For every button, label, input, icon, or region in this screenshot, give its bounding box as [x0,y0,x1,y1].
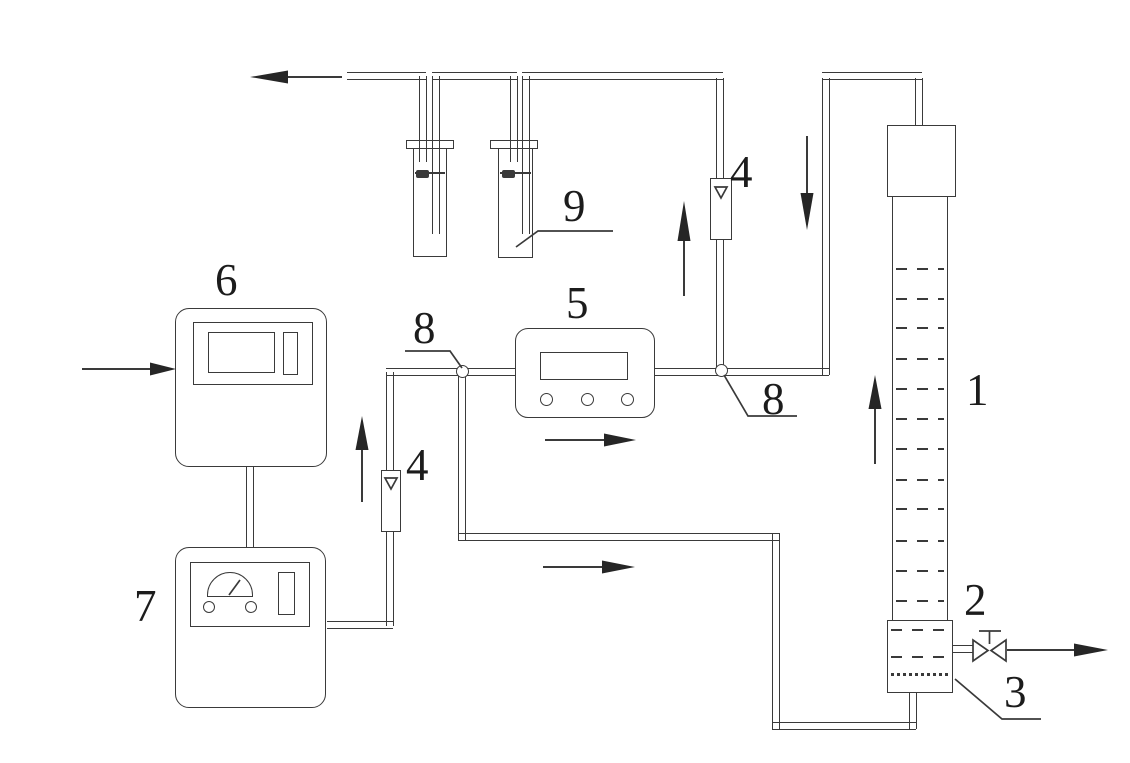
pipe-instrument6-to-instrument7 [246,466,254,547]
label-8-junction-left: 8 [413,306,436,351]
bottle-1-liquid-meniscus [416,170,429,178]
flow-arrow-down-right [801,136,814,230]
label-5-analyzer: 5 [566,281,589,326]
pipe-column-to-valve [953,645,974,653]
flow-arrow-up-column [869,375,882,464]
inlet-arrow [82,363,176,376]
pipe-bottle2-to-flowmeter [522,72,723,80]
instrument-6-side-slot [283,332,298,375]
packing-dash [896,268,944,270]
pipe-junction-left-down [458,374,466,540]
flow-arrow-right-bottom [543,561,635,574]
bottle-2-dip-tube [522,76,530,234]
pipe-junction-left-to-analyzer [386,368,515,376]
pipe-bottom-bypass-run [458,533,779,541]
analyzer-5-display [540,352,628,380]
bottom-section-dash [891,629,949,631]
outlet-arrow-right [1007,644,1108,657]
bottom-section-dash [891,656,949,658]
gas-distributor-plate [891,673,949,676]
bottle-2-liquid-meniscus [502,170,515,178]
pipe-column-feed-riser [909,691,917,729]
pipe-flowmeter-right-upper [716,78,724,178]
instrument-7-knob-left [203,601,215,613]
leader-line-junction-left [405,351,462,368]
label-9-bottles: 9 [563,184,586,229]
pipe-bottom-downcomer [772,533,780,729]
flow-arrow-up-middle [678,201,691,296]
pipe-bottle1-to-bottle2 [432,72,517,80]
pipe-flowmeter-right-lower [716,239,724,372]
analyzer-5-button-3 [621,393,634,406]
label-1-column: 1 [966,368,989,413]
instrument-7-switch [278,572,295,615]
leader-line-distributor [955,679,1041,719]
packing-dash [896,508,944,510]
bottle-1-outlet-tube [419,76,427,162]
packing-dash [896,479,944,481]
flowmeter-right [710,178,732,240]
label-8-junction-right: 8 [762,377,785,422]
drain-valve [973,631,1006,661]
packing-dash [896,418,944,420]
label-2-valve: 2 [964,578,987,623]
packing-dash [896,448,944,450]
absorption-bottle-1-body [413,148,447,257]
pipe-column-feed-run [772,722,916,730]
label-3-distributor: 3 [1004,670,1027,715]
packing-dash [896,540,944,542]
instrument-6-display [208,332,275,373]
flow-arrow-right-analyzer [545,434,636,447]
label-4-flowmeter-left: 4 [406,443,429,488]
column-body [892,196,948,621]
exhaust-arrow [250,71,342,84]
junction-right [715,364,728,377]
pipe-column-outlet-downcomer [822,78,830,375]
packing-dash [896,358,944,360]
packing-dash [896,600,944,602]
label-4-flowmeter-right: 4 [730,150,753,195]
instrument-7-knob-right [245,601,257,613]
flowmeter-left [381,470,401,532]
pipe-column-top-run [822,72,922,80]
pipe-instrument7-outlet [327,621,393,629]
pipe-flowmeter-left-lower [386,531,394,626]
junction-left [456,365,469,378]
packing-dash [896,298,944,300]
packing-dash [896,570,944,572]
pipe-analyzer-to-junction-right [655,368,829,376]
pipe-flowmeter-left-upper [386,372,394,470]
label-6-instrument-top: 6 [215,258,238,303]
pipe-exhaust-line [347,72,426,80]
bottle-1-dip-tube [432,76,440,234]
analyzer-5-button-1 [540,393,553,406]
column-top-header [887,125,956,197]
flow-arrow-up-left [356,416,369,502]
apparatus-flow-diagram: 1 2 3 4 4 5 6 7 8 8 9 [0,0,1130,763]
label-7-instrument-bottom: 7 [134,584,157,629]
packing-dash [896,327,944,329]
pipe-column-top-stub [915,78,923,126]
packing-dash [896,388,944,390]
analyzer-5-button-2 [581,393,594,406]
absorption-bottle-1-stopper [406,140,454,149]
leader-line-junction-right [724,375,797,416]
bottle-2-outlet-tube [510,76,518,162]
